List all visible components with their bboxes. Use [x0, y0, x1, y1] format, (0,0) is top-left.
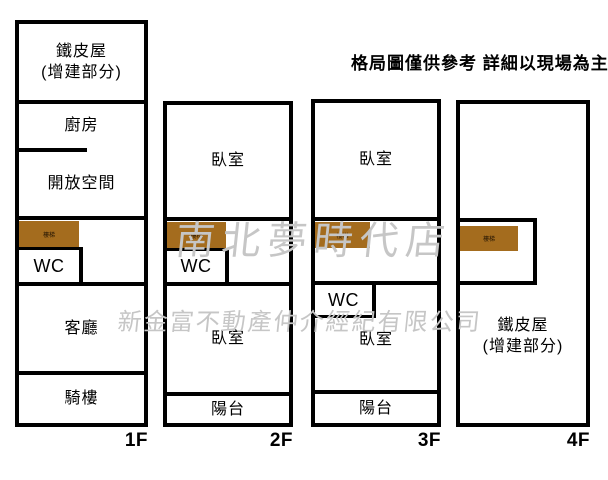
floor-label-1f: 1F — [15, 430, 148, 450]
floor-plan-canvas: 格局圖僅供參考 詳細以現場為主 鐵皮屋 (增建部分) 廚房 開放空間 樓梯 WC… — [0, 0, 608, 480]
room-label: 開放空間 — [47, 174, 115, 194]
room-label: 陽台 — [359, 399, 393, 419]
stairs-box-1f: 樓梯 — [19, 221, 79, 247]
stairs-label: 樓梯 — [43, 230, 55, 239]
room-label: 鐵皮屋 — [56, 41, 107, 62]
wall — [315, 217, 437, 221]
room-label-sub: (增建部分) — [483, 336, 564, 357]
floor-plan-1f: 鐵皮屋 (增建部分) 廚房 開放空間 樓梯 WC 客廳 騎樓 — [15, 20, 148, 427]
room-bedroom-top-3f: 臥室 — [315, 103, 437, 217]
wc-room-2f: WC — [167, 248, 229, 282]
room-label: 鐵皮屋 — [497, 315, 548, 336]
wc-room-1f: WC — [19, 247, 83, 282]
room-bedroom-top-2f: 臥室 — [167, 105, 289, 217]
room-tin-house-4f: 鐵皮屋 (增建部分) — [460, 312, 586, 360]
room-tin-house-1f: 鐵皮屋 (增建部分) — [19, 24, 144, 100]
room-kitchen-1f: 廚房 — [19, 104, 144, 148]
room-label-sub: (增建部分) — [41, 62, 122, 83]
floor-label-2f: 2F — [163, 430, 293, 450]
floor-plan-2f: 臥室 樓梯 WC 臥室 陽台 — [163, 101, 293, 427]
room-label: 騎樓 — [64, 389, 98, 409]
room-label: 臥室 — [211, 151, 245, 171]
floor-plan-3f: 臥室 樓梯 WC 臥室 陽台 — [311, 99, 441, 427]
stairs-label: 樓梯 — [190, 231, 202, 240]
stairs-label: 樓梯 — [483, 234, 495, 243]
room-living-1f: 客廳 — [19, 286, 144, 371]
stairs-box-3f: 樓梯 — [315, 222, 370, 248]
floor-label-3f: 3F — [311, 430, 441, 450]
room-label: WC — [181, 256, 212, 277]
room-arcade-1f: 騎樓 — [19, 375, 144, 423]
room-label: 臥室 — [359, 330, 393, 350]
room-open-space-1f: 開放空間 — [19, 152, 144, 216]
wall — [167, 217, 289, 221]
stairs-box-2f: 樓梯 — [167, 222, 226, 248]
room-label: WC — [328, 290, 359, 311]
floor-label-4f: 4F — [456, 430, 590, 450]
wc-room-3f: WC — [315, 285, 376, 318]
room-balcony-3f: 陽台 — [315, 394, 437, 423]
room-balcony-2f: 陽台 — [167, 396, 289, 423]
stairwell-enclosure-4f: 樓梯 — [460, 218, 537, 285]
room-bedroom-bottom-3f: 臥室 — [315, 328, 437, 352]
disclaimer-text: 格局圖僅供參考 詳細以現場為主 — [351, 49, 608, 74]
room-label: 臥室 — [211, 329, 245, 349]
room-bedroom-bottom-2f: 臥室 — [167, 286, 289, 392]
room-label: 臥室 — [359, 150, 393, 170]
room-label: 客廳 — [64, 319, 98, 339]
floor-plan-4f: 樓梯 鐵皮屋 (增建部分) — [456, 100, 590, 427]
room-label: 廚房 — [64, 116, 98, 136]
stairs-label: 樓梯 — [336, 231, 348, 240]
stairs-box-4f: 樓梯 — [460, 226, 518, 251]
wall — [19, 216, 144, 220]
room-label: WC — [34, 256, 65, 277]
room-label: 陽台 — [211, 400, 245, 420]
